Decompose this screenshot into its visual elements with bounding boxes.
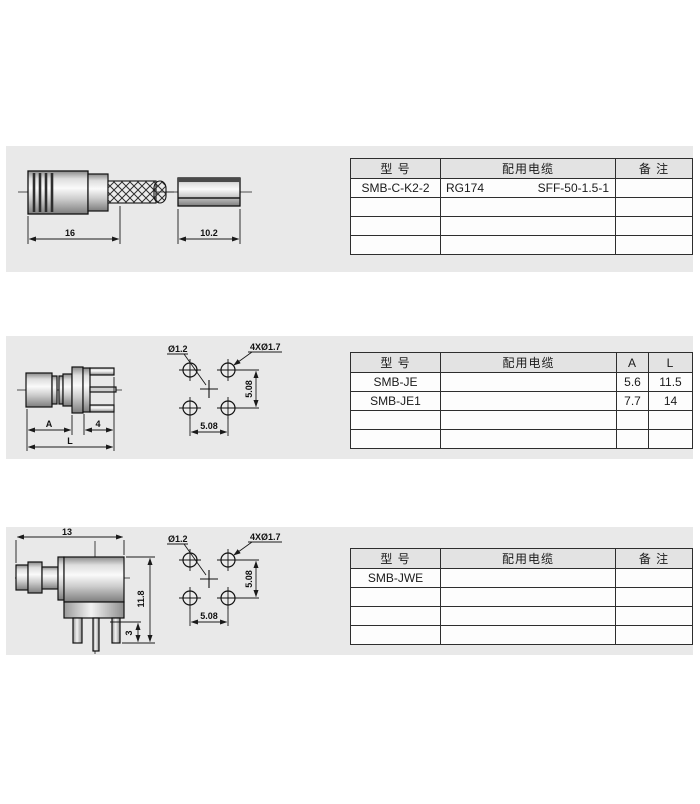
col-header-cable: 配用电缆 bbox=[441, 159, 616, 179]
note-cell bbox=[616, 569, 693, 588]
dim-label-4: 4 bbox=[95, 419, 100, 429]
center-pin-hole bbox=[200, 380, 218, 398]
col-header-model: 型 号 bbox=[351, 159, 441, 179]
corner-holes-label: 4XØ1.7 bbox=[250, 342, 281, 352]
table-row-empty bbox=[351, 430, 693, 449]
empty-cell bbox=[351, 236, 441, 255]
section-1-band: 16 10.2 型 号 配用电缆 备 注 SMB-C-K2-2 RG174 bbox=[6, 146, 693, 272]
mounting-holes bbox=[179, 359, 239, 419]
dim-label-11-8: 11.8 bbox=[136, 590, 146, 607]
smb-jwe-drawing: 13 11.8 3 bbox=[10, 527, 170, 655]
empty-cell bbox=[617, 411, 649, 430]
col-header-cable: 配用电缆 bbox=[441, 353, 617, 373]
mounting-holes bbox=[179, 549, 239, 609]
model-cell: SMB-JE bbox=[351, 373, 441, 392]
empty-cell bbox=[441, 236, 616, 255]
empty-cell bbox=[616, 626, 693, 645]
connector-barrel bbox=[64, 557, 124, 602]
table-row-empty bbox=[351, 198, 693, 217]
empty-cell bbox=[351, 607, 441, 626]
empty-cell bbox=[441, 607, 616, 626]
a-value-cell: 7.7 bbox=[617, 392, 649, 411]
l-value-cell: 11.5 bbox=[649, 373, 693, 392]
table-header-row: 型 号 配用电缆 备 注 bbox=[351, 549, 693, 569]
center-pin-hole bbox=[200, 570, 218, 588]
table-row-empty bbox=[351, 588, 693, 607]
dim-label-a: A bbox=[46, 419, 53, 429]
dim-label-10-2: 10.2 bbox=[200, 228, 218, 238]
smb-jwe-pcb-footprint: Ø1.2 4XØ1.7 5.08 5.08 bbox=[160, 530, 290, 635]
table-row-empty bbox=[351, 626, 693, 645]
table-row: SMB-JWE bbox=[351, 569, 693, 588]
cable-cell: RG174 SFF-50-1.5-1 bbox=[441, 179, 616, 198]
empty-cell bbox=[649, 430, 693, 449]
spec-table-smb-je: 型 号 配用电缆 A L SMB-JE 5.6 11.5 SMB-JE1 7.7… bbox=[350, 352, 693, 449]
empty-cell bbox=[351, 588, 441, 607]
empty-cell bbox=[616, 198, 693, 217]
l-value-cell: 14 bbox=[649, 392, 693, 411]
col-header-model: 型 号 bbox=[351, 353, 441, 373]
dim-label-pitch-v: 5.08 bbox=[244, 570, 254, 588]
connector-body-side-view bbox=[28, 171, 166, 214]
leader-line bbox=[234, 352, 252, 365]
col-header-cable: 配用电缆 bbox=[441, 549, 616, 569]
table-row-empty bbox=[351, 607, 693, 626]
col-header-model: 型 号 bbox=[351, 549, 441, 569]
cable-type-alt: SFF-50-1.5-1 bbox=[538, 181, 609, 195]
table-header-row: 型 号 配用电缆 A L bbox=[351, 353, 693, 373]
empty-cell bbox=[441, 430, 617, 449]
a-value-cell: 5.6 bbox=[617, 373, 649, 392]
crimp-ferrule-knurl bbox=[108, 181, 156, 203]
dimension-sleeve-length bbox=[178, 209, 240, 244]
catalog-page: { "colors": { "page_bg": "#ffffff", "ban… bbox=[0, 0, 700, 804]
empty-cell bbox=[616, 588, 693, 607]
cable-type: RG174 bbox=[446, 181, 484, 195]
left-leg bbox=[73, 618, 82, 643]
empty-cell bbox=[351, 217, 441, 236]
empty-cell bbox=[351, 411, 441, 430]
empty-cell bbox=[351, 430, 441, 449]
smb-c-k2-2-drawing: 16 10.2 bbox=[10, 150, 340, 260]
empty-cell bbox=[616, 217, 693, 236]
empty-cell bbox=[616, 607, 693, 626]
section-3-band: 13 11.8 3 Ø1.2 bbox=[6, 527, 693, 655]
empty-cell bbox=[441, 588, 616, 607]
table-row-empty bbox=[351, 411, 693, 430]
spec-table-smb-c-k2-2: 型 号 配用电缆 备 注 SMB-C-K2-2 RG174 SFF-50-1.5… bbox=[350, 158, 693, 255]
spec-table-smb-jwe: 型 号 配用电缆 备 注 SMB-JWE bbox=[350, 548, 693, 645]
smb-je-pcb-footprint: Ø1.2 4XØ1.7 5.08 5.08 bbox=[160, 340, 290, 445]
center-hole-dia-label: Ø1.2 bbox=[168, 534, 188, 544]
model-cell: SMB-JWE bbox=[351, 569, 441, 588]
dim-label-13: 13 bbox=[62, 527, 72, 537]
table-row: SMB-JE1 7.7 14 bbox=[351, 392, 693, 411]
dim-label-pitch-v: 5.08 bbox=[244, 380, 254, 398]
empty-cell bbox=[351, 626, 441, 645]
col-header-a: A bbox=[617, 353, 649, 373]
dim-label-16: 16 bbox=[65, 228, 75, 238]
model-cell: SMB-JE1 bbox=[351, 392, 441, 411]
cable-cell bbox=[441, 392, 617, 411]
table-row: SMB-JE 5.6 11.5 bbox=[351, 373, 693, 392]
leader-line bbox=[234, 542, 252, 555]
center-hole-dia-label: Ø1.2 bbox=[168, 344, 188, 354]
pcb-jack-side-view bbox=[26, 367, 116, 413]
empty-cell bbox=[441, 411, 617, 430]
right-angle-jack-side-view bbox=[16, 557, 124, 651]
table-row-empty bbox=[351, 236, 693, 255]
empty-cell bbox=[441, 198, 616, 217]
smb-je-drawing: A 4 L bbox=[10, 340, 160, 458]
bottom-leg bbox=[90, 405, 114, 412]
empty-cell bbox=[441, 217, 616, 236]
top-leg bbox=[90, 368, 114, 375]
dim-label-3: 3 bbox=[124, 630, 134, 635]
dim-label-pitch-h: 5.08 bbox=[200, 611, 218, 621]
center-pin bbox=[93, 618, 99, 651]
cable-cell bbox=[441, 373, 617, 392]
corner-holes-label: 4XØ1.7 bbox=[250, 532, 281, 542]
table-row: SMB-C-K2-2 RG174 SFF-50-1.5-1 bbox=[351, 179, 693, 198]
col-header-note: 备 注 bbox=[616, 159, 693, 179]
lower-body bbox=[64, 602, 124, 618]
cable-cell bbox=[441, 569, 616, 588]
table-header-row: 型 号 配用电缆 备 注 bbox=[351, 159, 693, 179]
ferrule-sleeve-side-view bbox=[178, 178, 240, 206]
dim-label-pitch-h: 5.08 bbox=[200, 421, 218, 431]
section-2-band: A 4 L Ø1 bbox=[6, 336, 693, 459]
col-header-note: 备 注 bbox=[616, 549, 693, 569]
note-cell bbox=[616, 179, 693, 198]
empty-cell bbox=[441, 626, 616, 645]
col-header-l: L bbox=[649, 353, 693, 373]
dim-label-l: L bbox=[67, 436, 73, 446]
model-cell: SMB-C-K2-2 bbox=[351, 179, 441, 198]
empty-cell bbox=[351, 198, 441, 217]
table-row-empty bbox=[351, 217, 693, 236]
empty-cell bbox=[617, 430, 649, 449]
empty-cell bbox=[649, 411, 693, 430]
center-pin bbox=[90, 387, 116, 392]
empty-cell bbox=[616, 236, 693, 255]
